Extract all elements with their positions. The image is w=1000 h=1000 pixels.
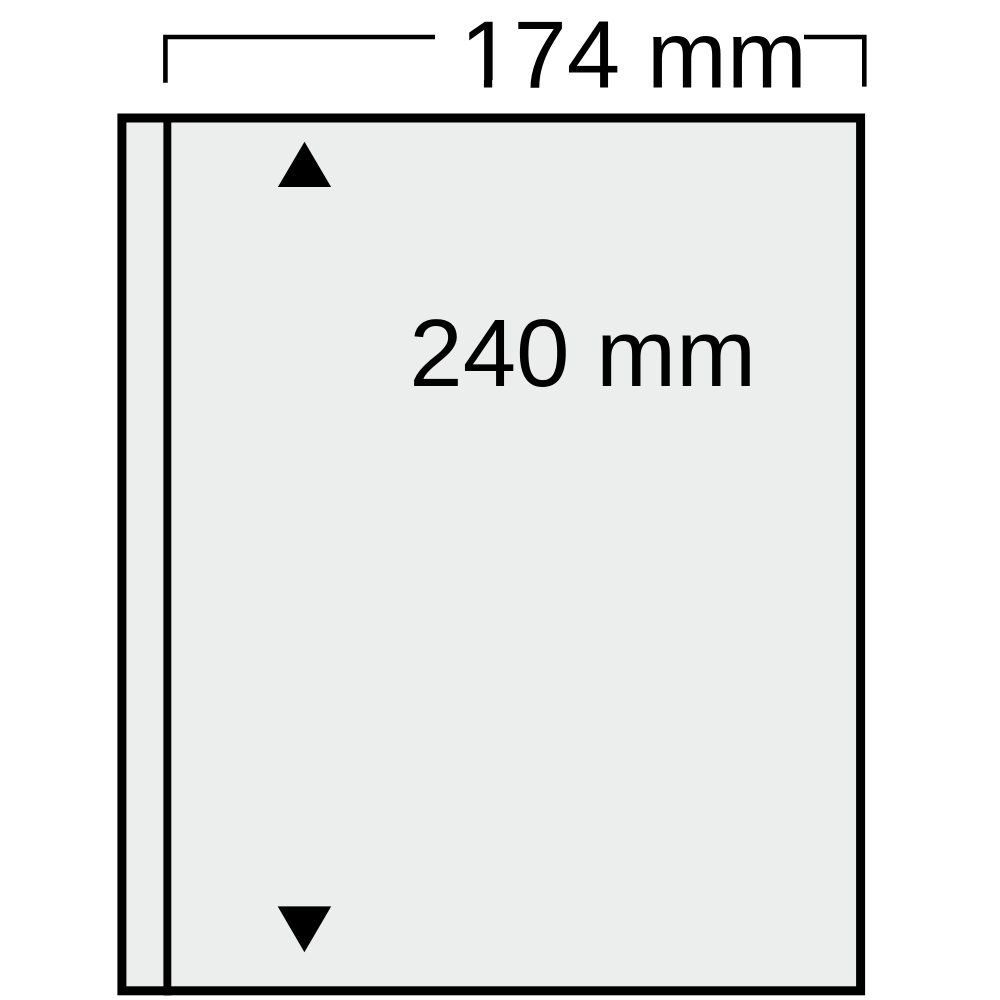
svg-text:240 mm: 240 mm: [409, 300, 756, 407]
svg-text:174 mm: 174 mm: [460, 2, 807, 109]
